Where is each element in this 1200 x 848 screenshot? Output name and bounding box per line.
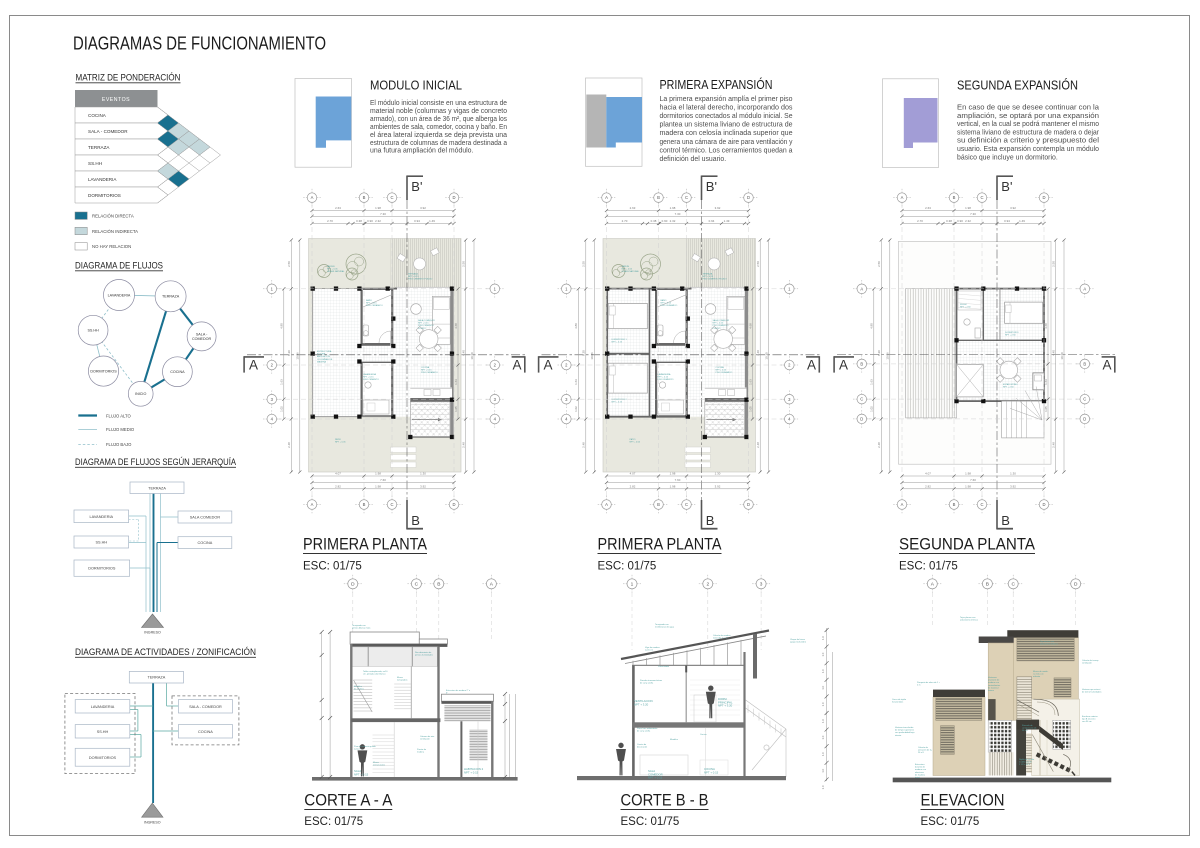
svg-text:D: D xyxy=(1042,195,1045,200)
svg-text:10.06: 10.06 xyxy=(296,352,300,360)
svg-text:B: B xyxy=(706,513,715,528)
svg-text:usuario. Esta expansión contem: usuario. Esta expansión contempla un mód… xyxy=(957,146,1099,153)
svg-text:3.92: 3.92 xyxy=(715,206,721,210)
svg-text:0.94: 0.94 xyxy=(414,219,420,223)
svg-text:hacia el lateral derecho, inco: hacia el lateral derecho, incorporando d… xyxy=(660,105,794,112)
svg-text:INGRESO: INGRESO xyxy=(144,821,161,825)
svg-text:C: C xyxy=(860,397,863,402)
svg-text:D: D xyxy=(1083,417,1086,422)
svg-text:2.82: 2.82 xyxy=(925,484,931,488)
svg-text:B: B xyxy=(986,582,989,588)
svg-text:MODULO INICIAL: MODULO INICIAL xyxy=(370,79,462,93)
svg-text:8.20: 8.20 xyxy=(877,350,881,356)
svg-text:Recubrimiento depintura humeda: Recubrimiento depintura humedades xyxy=(415,651,433,657)
svg-text:DIAGRAMA DE ACTIVIDADES / ZONI: DIAGRAMA DE ACTIVIDADES / ZONIFICACIÓN xyxy=(75,647,256,657)
svg-text:1.63: 1.63 xyxy=(454,379,458,385)
svg-text:PRIMERA PLANTA: PRIMERA PLANTA xyxy=(303,536,427,554)
svg-text:2.82: 2.82 xyxy=(335,484,341,488)
svg-text:C: C xyxy=(415,582,419,588)
svg-text:A: A xyxy=(807,358,816,373)
svg-text:1.98: 1.98 xyxy=(670,472,676,476)
svg-text:CORTE B - B: CORTE B - B xyxy=(621,792,709,810)
svg-text:1.0: 1.0 xyxy=(821,768,825,772)
svg-text:2.48: 2.48 xyxy=(1052,442,1056,448)
svg-text:7.60: 7.60 xyxy=(380,478,386,482)
svg-text:ESC: 01/75: ESC: 01/75 xyxy=(304,816,363,828)
svg-text:B: B xyxy=(657,502,660,507)
svg-text:SEGUNDA PLANTA: SEGUNDA PLANTA xyxy=(899,536,1035,554)
svg-text:una futura ampliación del módu: una futura ampliación del módulo. xyxy=(370,148,474,155)
svg-text:definición del usuario.: definición del usuario. xyxy=(660,156,727,163)
svg-text:3: 3 xyxy=(760,582,763,588)
svg-text:COCINA: COCINA xyxy=(198,541,213,545)
svg-text:1.49: 1.49 xyxy=(429,219,435,223)
svg-text:A: A xyxy=(1083,286,1086,291)
svg-text:2: 2 xyxy=(706,582,709,588)
svg-text:B: B xyxy=(657,195,660,200)
svg-text:Chapa de hierroapoyo techumbre: Chapa de hierroapoyo techumbre xyxy=(790,638,807,644)
svg-text:ESC: 01/75: ESC: 01/75 xyxy=(921,816,980,828)
svg-text:1.30: 1.30 xyxy=(715,472,721,476)
svg-text:7.30: 7.30 xyxy=(970,212,976,216)
svg-text:0.90: 0.90 xyxy=(662,219,668,223)
svg-text:2.82: 2.82 xyxy=(630,484,636,488)
svg-text:2.48: 2.48 xyxy=(462,442,466,448)
svg-text:A: A xyxy=(839,358,848,373)
svg-text:Ventana aps estructde techo hu: Ventana aps estructde techo humedades xyxy=(1082,688,1101,694)
svg-text:1.63: 1.63 xyxy=(1044,379,1048,385)
svg-text:DIAGRAMAS DE FUNCIONAMIENTO: DIAGRAMAS DE FUNCIONAMIENTO xyxy=(73,32,326,53)
svg-text:C: C xyxy=(980,502,983,507)
svg-text:armado), con un área de 36 m²,: armado), con un área de 36 m², que alber… xyxy=(370,116,508,123)
svg-text:TERRAZA: TERRAZA xyxy=(88,145,110,150)
svg-text:1.0: 1.0 xyxy=(821,735,825,739)
svg-text:10.30: 10.30 xyxy=(764,352,768,360)
svg-text:En caso de que se desee contin: En caso de que se desee continuar con la xyxy=(957,105,1099,112)
svg-text:3.92: 3.92 xyxy=(715,484,721,488)
svg-text:3.92: 3.92 xyxy=(420,484,426,488)
svg-text:FLUJO MEDIO: FLUJO MEDIO xyxy=(106,427,135,432)
svg-text:sistema liviano de estructura: sistema liviano de estructura de madera … xyxy=(957,129,1100,136)
svg-text:INGRESO: INGRESO xyxy=(144,631,161,635)
svg-text:1.30: 1.30 xyxy=(420,472,426,476)
svg-text:1.02: 1.02 xyxy=(870,406,874,412)
svg-text:B': B' xyxy=(1001,179,1012,194)
svg-text:1.0: 1.0 xyxy=(821,652,825,656)
svg-text:TERRAZA: TERRAZA xyxy=(162,295,180,299)
svg-text:1.0: 1.0 xyxy=(821,785,825,789)
svg-text:PRIMERA EXPANSIÓN: PRIMERA EXPANSIÓN xyxy=(660,77,773,92)
svg-text:A: A xyxy=(311,195,314,200)
svg-text:4.40: 4.40 xyxy=(756,350,760,356)
svg-text:0.38: 0.38 xyxy=(356,219,362,223)
svg-text:madera con celosía inclinada s: madera con celosía inclinada superior qu… xyxy=(660,130,793,137)
svg-text:1.0: 1.0 xyxy=(821,702,825,706)
svg-text:7.30: 7.30 xyxy=(380,212,386,216)
svg-text:A: A xyxy=(1103,358,1112,373)
svg-text:SS.HH: SS.HH xyxy=(87,329,99,333)
svg-text:1.98: 1.98 xyxy=(965,472,971,476)
svg-text:1.49: 1.49 xyxy=(1019,219,1025,223)
svg-text:COMEDOR: COMEDOR xyxy=(192,337,212,341)
svg-text:su definición a criterio y pre: su definición a criterio y presupuesto d… xyxy=(957,138,1100,145)
svg-text:B: B xyxy=(953,502,956,507)
svg-text:2.63: 2.63 xyxy=(630,206,636,210)
svg-text:10.30: 10.30 xyxy=(470,352,474,360)
svg-text:D: D xyxy=(1042,502,1045,507)
svg-text:1.0: 1.0 xyxy=(821,719,825,723)
svg-text:Tabla contraplacada, e=10cm, p: Tabla contraplacada, e=10cm, pintada col… xyxy=(363,670,388,676)
svg-text:2.50: 2.50 xyxy=(877,261,881,267)
svg-text:4.80: 4.80 xyxy=(280,323,284,329)
svg-text:dormitorios conectados al módu: dormitorios conectados al módulo inicial… xyxy=(660,113,793,120)
svg-text:B: B xyxy=(953,195,956,200)
svg-text:control térmico. Los cerramien: control térmico. Los cerramientos quedan… xyxy=(660,147,793,154)
svg-text:1.98: 1.98 xyxy=(375,484,381,488)
svg-text:1.63: 1.63 xyxy=(574,379,578,385)
svg-text:FLUJO ALTO: FLUJO ALTO xyxy=(106,413,131,418)
svg-text:1.0: 1.0 xyxy=(821,685,825,689)
svg-text:CORTE A - A: CORTE A - A xyxy=(304,792,392,810)
svg-text:C: C xyxy=(980,195,983,200)
svg-text:A: A xyxy=(249,358,258,373)
svg-text:4.68: 4.68 xyxy=(748,323,752,329)
svg-text:B: B xyxy=(1001,513,1010,528)
svg-text:2.48: 2.48 xyxy=(582,442,586,448)
svg-text:SALA -: SALA - xyxy=(196,333,208,337)
svg-text:DIAGRAMA DE FLUJOS SEGÚN JERAR: DIAGRAMA DE FLUJOS SEGÚN JERARQUÍA xyxy=(75,457,237,467)
svg-text:1.05: 1.05 xyxy=(454,406,458,412)
svg-text:B': B' xyxy=(411,179,422,194)
svg-text:7.60: 7.60 xyxy=(970,478,976,482)
svg-text:2.48: 2.48 xyxy=(756,442,760,448)
svg-text:2.50: 2.50 xyxy=(582,261,586,267)
svg-text:2.50: 2.50 xyxy=(462,261,466,267)
svg-text:B: B xyxy=(411,513,420,528)
svg-text:SALA - COMEDOR: SALA - COMEDOR xyxy=(189,705,222,709)
svg-text:SEGUNDA EXPANSIÓN: SEGUNDA EXPANSIÓN xyxy=(957,78,1078,93)
svg-text:TERRAZA: TERRAZA xyxy=(148,486,166,490)
svg-text:0.38: 0.38 xyxy=(651,219,657,223)
svg-text:plantea un sistema liviano de: plantea un sistema liviano de estructura… xyxy=(660,122,793,129)
svg-text:1.0: 1.0 xyxy=(821,752,825,756)
svg-text:2.70: 2.70 xyxy=(327,219,333,223)
svg-text:2.48: 2.48 xyxy=(287,442,291,448)
svg-text:DIAGRAMA DE FLUJOS: DIAGRAMA DE FLUJOS xyxy=(75,261,163,271)
svg-text:4.80: 4.80 xyxy=(574,323,578,329)
svg-text:1.05: 1.05 xyxy=(748,406,752,412)
svg-text:1.63: 1.63 xyxy=(280,379,284,385)
svg-text:La primera expansión amplía el: La primera expansión amplía el primer pi… xyxy=(660,96,793,103)
svg-text:MATRIZ DE PONDERACIÓN: MATRIZ DE PONDERACIÓN xyxy=(76,73,181,83)
svg-text:1.02: 1.02 xyxy=(574,406,578,412)
svg-text:D: D xyxy=(452,502,455,507)
svg-text:SS.HH: SS.HH xyxy=(95,541,107,545)
svg-text:3.92: 3.92 xyxy=(420,206,426,210)
svg-text:B: B xyxy=(437,582,440,588)
svg-text:C: C xyxy=(1083,397,1086,402)
svg-text:LAVANDERIA: LAVANDERIA xyxy=(108,293,131,297)
svg-text:C: C xyxy=(685,502,688,507)
svg-text:8.20: 8.20 xyxy=(287,350,291,356)
svg-text:A: A xyxy=(544,358,553,373)
svg-text:D: D xyxy=(860,417,863,422)
svg-text:SALA - COMEDOR: SALA - COMEDOR xyxy=(88,129,128,134)
svg-text:0.90: 0.90 xyxy=(367,219,373,223)
svg-text:4.68: 4.68 xyxy=(454,323,458,329)
svg-text:2.32: 2.32 xyxy=(375,219,381,223)
svg-text:D: D xyxy=(747,502,750,507)
svg-text:0.94: 0.94 xyxy=(1004,219,1010,223)
svg-text:C: C xyxy=(685,195,688,200)
svg-text:2.50: 2.50 xyxy=(287,261,291,267)
svg-text:2.32: 2.32 xyxy=(670,219,676,223)
svg-text:1.98: 1.98 xyxy=(670,484,676,488)
svg-text:vertical, en la cual se podrá: vertical, en la cual se podrá mantener e… xyxy=(957,121,1099,128)
svg-text:10.06: 10.06 xyxy=(590,352,594,360)
svg-text:1.02: 1.02 xyxy=(280,406,284,412)
svg-text:ambientes de sala, comedor, co: ambientes de sala, comedor, cocina y bañ… xyxy=(370,124,507,131)
svg-text:LAVANDERIA: LAVANDERIA xyxy=(91,705,115,709)
svg-text:ESC: 01/75: ESC: 01/75 xyxy=(621,816,680,828)
svg-text:ESC: 01/75: ESC: 01/75 xyxy=(303,561,362,573)
svg-text:1.49: 1.49 xyxy=(724,219,730,223)
svg-text:A: A xyxy=(605,502,608,507)
svg-text:1: 1 xyxy=(631,582,634,588)
svg-text:1.30: 1.30 xyxy=(1010,472,1016,476)
svg-text:estructura de columnas de made: estructura de columnas de madera destina… xyxy=(370,140,507,147)
svg-text:7.60: 7.60 xyxy=(675,478,681,482)
svg-text:RELACIÓN DIRECTA: RELACIÓN DIRECTA xyxy=(92,214,134,219)
svg-text:FLUJO BAJO: FLUJO BAJO xyxy=(106,442,132,447)
svg-text:1.98: 1.98 xyxy=(670,206,676,210)
svg-text:A: A xyxy=(860,286,863,291)
svg-text:2.63: 2.63 xyxy=(335,206,341,210)
svg-text:RELACIÓN INDIRECTA: RELACIÓN INDIRECTA xyxy=(92,229,138,234)
svg-text:2.50: 2.50 xyxy=(1052,261,1056,267)
svg-text:Pared doble: Pared doble xyxy=(658,665,670,668)
svg-text:SALA COMEDOR: SALA COMEDOR xyxy=(190,516,221,520)
svg-text:el área lateral izquierda se d: el área lateral izquierda se deja previs… xyxy=(370,132,507,139)
svg-text:NO HAY RELACION: NO HAY RELACION xyxy=(92,244,131,249)
svg-text:1.98: 1.98 xyxy=(965,484,971,488)
svg-text:0.90: 0.90 xyxy=(957,219,963,223)
svg-text:DORMITORIOS: DORMITORIOS xyxy=(89,756,117,760)
svg-text:10.06: 10.06 xyxy=(886,352,890,360)
svg-text:EVENTOS: EVENTOS xyxy=(102,97,130,103)
svg-text:genera una cámara de aire para: genera una cámara de aire para ventilaci… xyxy=(660,139,794,146)
svg-text:C: C xyxy=(390,195,393,200)
svg-text:ELEVACION: ELEVACION xyxy=(921,792,1005,810)
svg-text:DORMITORIOS: DORMITORIOS xyxy=(88,567,116,571)
svg-text:1.0: 1.0 xyxy=(821,636,825,640)
svg-text:A: A xyxy=(901,502,904,507)
svg-text:4.40: 4.40 xyxy=(1052,350,1056,356)
svg-text:C: C xyxy=(1011,582,1015,588)
svg-text:1.0: 1.0 xyxy=(821,669,825,673)
svg-text:4.07: 4.07 xyxy=(335,472,341,476)
svg-text:2.32: 2.32 xyxy=(965,219,971,223)
svg-text:TERRAZA: TERRAZA xyxy=(148,676,166,680)
svg-text:0.38: 0.38 xyxy=(946,219,952,223)
svg-text:D: D xyxy=(747,195,750,200)
svg-text:C: C xyxy=(390,502,393,507)
svg-text:4.68: 4.68 xyxy=(1044,323,1048,329)
svg-text:D: D xyxy=(351,582,355,588)
svg-text:A: A xyxy=(513,358,522,373)
svg-text:Muebles: Muebles xyxy=(670,739,678,741)
svg-text:COCINA: COCINA xyxy=(88,113,107,118)
svg-text:DORMITORIOS: DORMITORIOS xyxy=(88,193,121,198)
svg-text:2.70: 2.70 xyxy=(622,219,628,223)
svg-text:SS.HH: SS.HH xyxy=(97,730,109,734)
svg-text:SS.HH: SS.HH xyxy=(88,161,102,166)
svg-text:10.30: 10.30 xyxy=(1060,352,1064,360)
svg-text:0.94: 0.94 xyxy=(709,219,715,223)
svg-text:D: D xyxy=(452,195,455,200)
svg-text:COCINA: COCINA xyxy=(170,370,185,374)
svg-text:ampliación, se optará por una: ampliación, se optará por una expansión xyxy=(957,113,1099,120)
svg-text:Cocina: Cocina xyxy=(700,734,707,736)
svg-text:DORMITORIOS: DORMITORIOS xyxy=(90,369,117,373)
svg-text:LAVANDERIA: LAVANDERIA xyxy=(90,515,114,519)
svg-text:B: B xyxy=(363,502,366,507)
svg-text:ESC: 01/75: ESC: 01/75 xyxy=(899,561,958,573)
svg-text:4.07: 4.07 xyxy=(630,472,636,476)
svg-text:7.30: 7.30 xyxy=(675,212,681,216)
svg-text:ESC: 01/75: ESC: 01/75 xyxy=(598,561,657,573)
svg-text:A: A xyxy=(311,502,314,507)
svg-text:B: B xyxy=(363,195,366,200)
svg-text:A: A xyxy=(605,195,608,200)
svg-text:3.92: 3.92 xyxy=(1010,206,1016,210)
svg-text:1.98: 1.98 xyxy=(375,206,381,210)
svg-text:1.63: 1.63 xyxy=(748,379,752,385)
svg-text:4.80: 4.80 xyxy=(870,323,874,329)
svg-text:3.92: 3.92 xyxy=(1010,484,1016,488)
svg-text:2.48: 2.48 xyxy=(877,442,881,448)
svg-text:PRIMERA PLANTA: PRIMERA PLANTA xyxy=(598,536,722,554)
svg-text:2.63: 2.63 xyxy=(925,206,931,210)
svg-text:COCINA: COCINA xyxy=(198,730,213,734)
svg-text:El módulo inicial consiste en: El módulo inicial consiste en una estruc… xyxy=(370,100,507,107)
svg-text:1.98: 1.98 xyxy=(965,206,971,210)
svg-text:1.05: 1.05 xyxy=(1044,406,1048,412)
svg-text:2.50: 2.50 xyxy=(756,261,760,267)
svg-text:1.98: 1.98 xyxy=(375,472,381,476)
svg-text:1.63: 1.63 xyxy=(870,379,874,385)
svg-text:4.40: 4.40 xyxy=(462,350,466,356)
svg-text:8.20: 8.20 xyxy=(582,350,586,356)
svg-text:INICIO: INICIO xyxy=(135,392,146,396)
svg-text:A: A xyxy=(901,195,904,200)
svg-text:B': B' xyxy=(706,179,717,194)
svg-text:LAVANDERIA: LAVANDERIA xyxy=(88,177,117,182)
svg-text:B: B xyxy=(1083,362,1086,367)
svg-text:2.70: 2.70 xyxy=(917,219,923,223)
svg-text:D: D xyxy=(1074,582,1078,588)
svg-text:material noble (columnas y vig: material noble (columnas y vigas de conc… xyxy=(370,108,507,115)
svg-text:4.07: 4.07 xyxy=(925,472,931,476)
svg-text:básico que incluye un dormitor: básico que incluye un dormitorio. xyxy=(957,154,1058,161)
svg-text:B: B xyxy=(860,362,863,367)
